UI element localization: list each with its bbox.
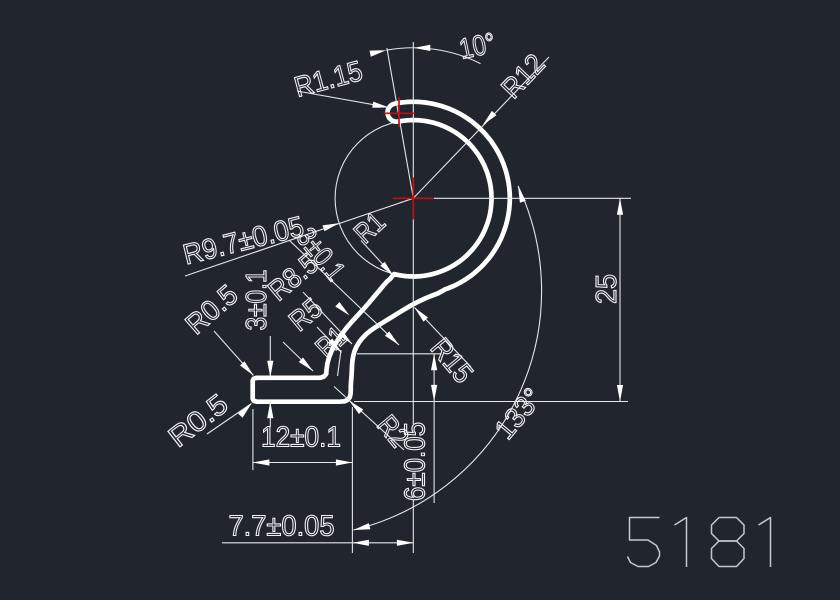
svg-text:7.7±0.05: 7.7±0.05 (229, 511, 335, 543)
svg-text:12±0.1: 12±0.1 (261, 422, 341, 454)
svg-text:25: 25 (591, 274, 623, 304)
svg-text:3±0.1: 3±0.1 (241, 270, 273, 331)
